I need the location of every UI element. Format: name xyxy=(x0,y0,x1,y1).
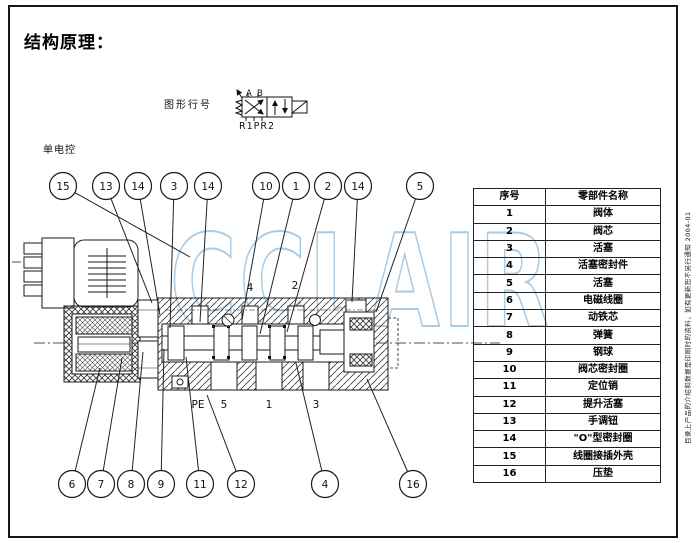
table-row: 5活塞 xyxy=(474,275,661,292)
svg-text:1: 1 xyxy=(293,181,300,193)
catalog-page: 结构原理： 图形行号 单电控 CCLAIR A B xyxy=(0,0,699,543)
svg-text:3: 3 xyxy=(171,181,178,193)
table-row: 4活塞密封件 xyxy=(474,258,661,275)
port-label-PE: PE xyxy=(192,399,205,411)
coil-winding-bottom xyxy=(76,354,132,371)
svg-text:14: 14 xyxy=(351,181,365,193)
solenoid-coil xyxy=(64,306,140,382)
svg-text:9: 9 xyxy=(158,479,165,491)
col-header-index: 序号 xyxy=(474,189,546,206)
spool-land xyxy=(298,326,313,360)
table-row: 6电磁线圈 xyxy=(474,292,661,309)
parts-table: 序号 零部件名称 1阀体2阀芯3活塞4活塞密封件5活塞6电磁线圈7动铁芯8弹簧9… xyxy=(473,188,661,483)
plunger xyxy=(78,337,130,352)
port-label-3: 3 xyxy=(313,399,320,411)
table-row: 10阀芯密封圈 xyxy=(474,361,661,378)
svg-text:14: 14 xyxy=(201,181,215,193)
schematic-ports-bottom: R1PR2 xyxy=(239,121,275,132)
pilot-arrow xyxy=(237,90,242,98)
svg-text:5: 5 xyxy=(417,181,424,193)
svg-text:14: 14 xyxy=(131,181,145,193)
connector-plug xyxy=(24,238,74,308)
table-row: 12提升活塞 xyxy=(474,396,661,413)
spool-land xyxy=(242,326,257,360)
table-row: 3活塞 xyxy=(474,240,661,257)
spool-land xyxy=(168,326,184,360)
table-row: 11定位销 xyxy=(474,379,661,396)
spring-symbol xyxy=(236,100,242,115)
table-row: 14"O"型密封圈 xyxy=(474,431,661,448)
table-row: 8弹簧 xyxy=(474,327,661,344)
table-row: 13手调钮 xyxy=(474,413,661,430)
port-label-1: 1 xyxy=(266,399,273,411)
col-header-name: 零部件名称 xyxy=(546,189,661,206)
armature-column xyxy=(138,300,158,378)
spool-land xyxy=(270,326,285,360)
spool-land xyxy=(214,326,229,360)
table-row: 15线圈接插外壳 xyxy=(474,448,661,465)
inner-label-2: 2 xyxy=(292,280,299,292)
table-row: 7动铁芯 xyxy=(474,310,661,327)
table-row: 2阀芯 xyxy=(474,223,661,240)
callout-12: 12 xyxy=(207,395,255,498)
svg-text:16: 16 xyxy=(406,479,420,491)
svg-text:12: 12 xyxy=(234,479,247,491)
svg-text:15: 15 xyxy=(56,181,69,193)
svg-text:2: 2 xyxy=(325,181,332,193)
svg-text:13: 13 xyxy=(99,181,112,193)
callout-16: 16 xyxy=(367,379,427,498)
table-header-row: 序号 零部件名称 xyxy=(474,189,661,206)
connector-housing xyxy=(74,240,138,307)
svg-text:4: 4 xyxy=(322,479,329,491)
schematic-symbol: A B R1PR2 xyxy=(236,89,307,132)
svg-text:10: 10 xyxy=(259,181,272,193)
coil-winding-top xyxy=(76,317,132,334)
margin-disclaimer: 目录上产品的介绍和数据是印刷时的资料，如有更新恕不另行通知 2004-01 xyxy=(682,192,692,444)
steel-ball-detail xyxy=(310,315,321,326)
port-label-5: 5 xyxy=(221,399,228,411)
svg-text:7: 7 xyxy=(98,479,105,491)
table-row: 16压垫 xyxy=(474,465,661,482)
table-row: 1阀体 xyxy=(474,206,661,223)
svg-text:6: 6 xyxy=(69,479,76,491)
svg-text:8: 8 xyxy=(128,479,135,491)
table-row: 9钢球 xyxy=(474,344,661,361)
svg-text:11: 11 xyxy=(193,479,206,491)
